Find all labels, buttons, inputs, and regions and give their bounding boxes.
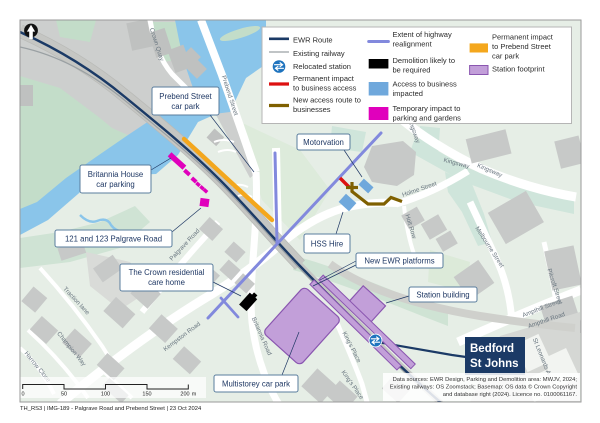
svg-text:to Prebend Street: to Prebend Street: [492, 42, 552, 51]
svg-text:St Johns: St Johns: [470, 358, 519, 370]
svg-text:Station footprint: Station footprint: [492, 65, 545, 74]
svg-text:0: 0: [21, 392, 24, 398]
svg-text:Prebend Street: Prebend Street: [159, 92, 212, 101]
svg-text:Permanent impact: Permanent impact: [293, 74, 355, 83]
svg-text:be required: be required: [393, 66, 431, 75]
svg-text:Existing railways: OS Zoomstac: Existing railways: OS Zoomstack; Basemap…: [390, 384, 578, 391]
svg-text:Demolition likely to: Demolition likely to: [393, 56, 456, 65]
svg-text:150: 150: [142, 392, 151, 398]
svg-text:realignment: realignment: [393, 40, 433, 49]
svg-text:Existing railway: Existing railway: [293, 49, 345, 58]
svg-text:TH_RS3 | IMG-189 - Palgrave Ro: TH_RS3 | IMG-189 - Palgrave Road and Pre…: [20, 406, 202, 412]
svg-text:car park: car park: [171, 102, 199, 111]
svg-text:Permanent impact: Permanent impact: [492, 33, 554, 42]
svg-text:Britannia House: Britannia House: [88, 170, 143, 179]
svg-text:care home: care home: [148, 278, 185, 287]
svg-text:Multistorey car park: Multistorey car park: [222, 380, 290, 389]
svg-text:and database right (2024). Lic: and database right (2024). Licence no. 0…: [443, 392, 578, 398]
svg-text:The Crown residential: The Crown residential: [129, 268, 205, 277]
svg-text:Temporary impact to: Temporary impact to: [393, 104, 461, 113]
svg-text:Relocated station: Relocated station: [293, 62, 351, 71]
svg-text:businesses: businesses: [293, 105, 331, 114]
svg-text:car parking: car parking: [96, 180, 135, 189]
svg-text:to business access: to business access: [293, 84, 357, 93]
svg-text:Extent of highway: Extent of highway: [393, 30, 452, 39]
svg-text:EWR Route: EWR Route: [293, 36, 333, 45]
svg-text:Data sources: EWR Design, Park: Data sources: EWR Design, Parking and De…: [393, 377, 578, 383]
svg-text:m: m: [192, 392, 197, 398]
svg-text:Access to business: Access to business: [393, 80, 457, 89]
svg-text:121 and 123 Palgrave Road: 121 and 123 Palgrave Road: [65, 235, 162, 244]
svg-text:Station building: Station building: [416, 291, 469, 300]
svg-text:50: 50: [61, 392, 67, 398]
svg-text:parking and gardens: parking and gardens: [393, 114, 462, 123]
svg-text:impacted: impacted: [393, 89, 423, 98]
svg-text:New access route to: New access route to: [293, 96, 361, 105]
svg-text:Bedford: Bedford: [470, 343, 514, 355]
svg-text:Motorvation: Motorvation: [303, 138, 344, 147]
svg-text:200: 200: [180, 392, 189, 398]
svg-text:New EWR platforms: New EWR platforms: [364, 257, 434, 266]
svg-text:HSS Hire: HSS Hire: [311, 240, 344, 249]
svg-text:car park: car park: [492, 52, 519, 61]
svg-text:100: 100: [101, 392, 110, 398]
